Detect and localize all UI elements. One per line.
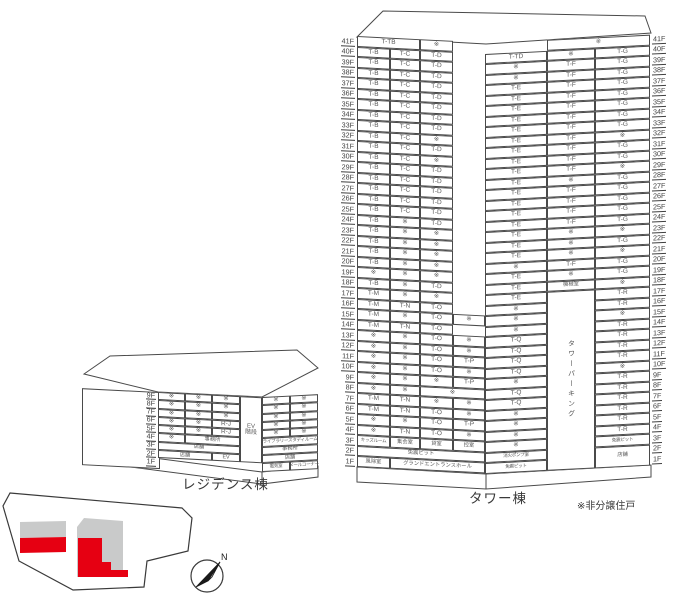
floor-label: 1F: [128, 457, 156, 467]
residence-ev-stairs-column: EV 階段: [240, 396, 262, 472]
residence-left-face: ※※※※※※※※※※※R-J※※R-J※事務所店舗店舗EV: [158, 392, 240, 471]
floor-plan-diagram: N 41F40F39F38F37F36F35F34F33F32F31F30F29…: [0, 0, 698, 600]
unit-cell: 店舗: [595, 444, 650, 468]
residence-footprint-red: [20, 537, 66, 553]
unit-cell: EV: [212, 453, 240, 463]
floor-label: 1F: [652, 452, 686, 464]
tower-right-face: ※T-TD※T-G※T-FT-G※T-FT-GT-ET-FT-GT-ET-FT-…: [485, 35, 650, 474]
legend-note: ※非分譲住戸: [577, 497, 635, 512]
residence-floor-labels: 9F8F7F6F5F4F3F2F1F: [128, 390, 156, 466]
site-boundary: [3, 493, 192, 590]
svg-text:N: N: [221, 552, 228, 562]
tower-footprint-red: [78, 538, 128, 577]
unit-cell: タワーパーキング: [547, 289, 595, 470]
unsold-unit-cell: ※: [453, 314, 485, 326]
tower-caption: タワー棟: [428, 487, 568, 507]
tower-floor-labels-right: 41F40F39F38F37F36F35F34F33F32F31F30F29F2…: [652, 32, 686, 464]
residence-footprint-gray: [20, 521, 66, 538]
compass-icon: N: [191, 552, 228, 592]
unit-cell: 店舗: [158, 450, 212, 461]
tower-building: 41F40F39F38F37F36F35F34F33F32F31F30F29F2…: [323, 36, 695, 476]
ev-stairs-cell: EV 階段: [240, 396, 262, 463]
residence-caption: レジデンス棟: [158, 473, 293, 493]
unit-cell: メールコーナー: [290, 461, 318, 471]
site-plan: [3, 493, 192, 590]
unit-cell: 風除室: [357, 456, 390, 468]
unit-cell: 電気室: [262, 462, 290, 472]
tower-left-face: T-TB※T-BT-CT-DT-BT-CT-DT-BT-CT-DT-BT-CT-…: [357, 36, 485, 473]
residence-building: 9F8F7F6F5F4F3F2F1F ※※※※※※※※※※※R-J※※R-J※事…: [128, 392, 348, 482]
residence-right-face: ※※※※※※※※※※ライブラリースタディルーム事務所店舗電気室メールコーナー: [262, 395, 318, 473]
unit-cell: 免震ピット: [485, 460, 547, 474]
tower-footprint-gray: [77, 518, 123, 577]
